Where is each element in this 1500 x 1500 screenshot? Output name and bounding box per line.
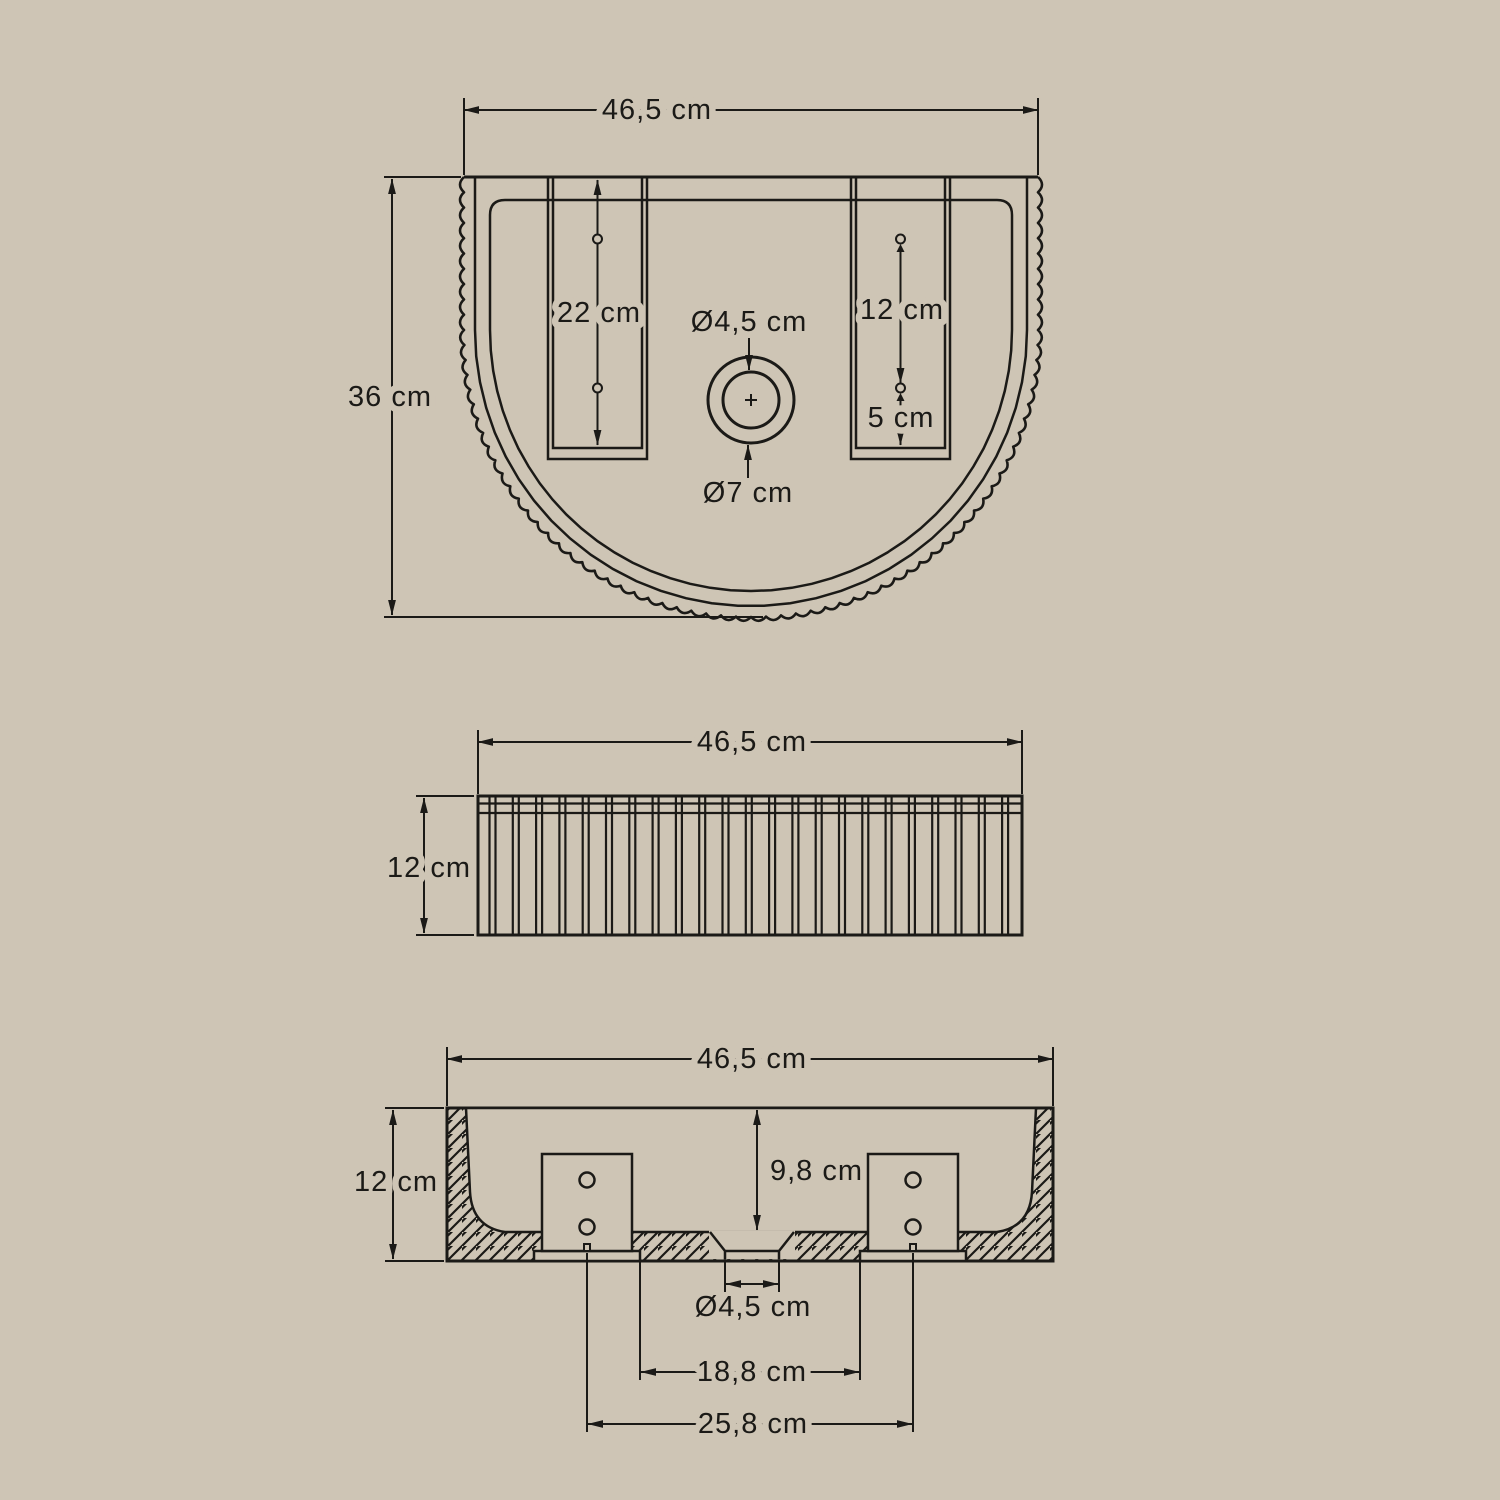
front-width-dimension: 46,5 cm xyxy=(478,726,1022,794)
lower-extension-lines xyxy=(587,1253,913,1432)
mounting-hole-mark xyxy=(593,235,602,244)
mounting-hole-mark xyxy=(593,384,602,393)
technical-drawing-page: 46,5 cm 36 cm 22 cm 12 c xyxy=(0,0,1500,1500)
basin-technical-drawing: 46,5 cm 36 cm 22 cm 12 c xyxy=(0,0,1500,1500)
drain-section xyxy=(709,1231,795,1260)
front-height-label: 12 cm xyxy=(387,852,471,884)
drain-clear xyxy=(709,1231,795,1260)
holes-center-spacing-dimension: 25,8 cm xyxy=(588,1408,912,1440)
front-view: 46,5 cm 12 cm xyxy=(387,726,1022,935)
drain-inner-diameter-label: Ø4,5 cm xyxy=(691,306,808,338)
top-height-label: 36 cm xyxy=(348,381,432,413)
top-width-dimension: 46,5 cm xyxy=(464,94,1038,175)
mini-up-arrow xyxy=(897,393,905,401)
mounting-bracket-left xyxy=(534,1154,640,1261)
slot-left-dimension: 22 cm xyxy=(557,180,641,445)
drain-outer-diameter-label: Ø7 cm xyxy=(703,477,793,509)
mounting-hole-mark xyxy=(896,384,905,393)
bracket-hole xyxy=(580,1220,595,1235)
slot-right-dimension: 12 cm 5 cm xyxy=(860,235,944,446)
holes-inner-spacing-label: 18,8 cm xyxy=(697,1356,807,1388)
slot-depth-label: 22 cm xyxy=(557,297,641,329)
holes-inner-spacing-dimension: 18,8 cm xyxy=(641,1356,859,1388)
mini-up-arrow xyxy=(897,244,905,252)
bracket-hole xyxy=(580,1173,595,1188)
section-view: 46,5 cm 12 cm 9,8 c xyxy=(354,1043,1053,1440)
bracket-hole xyxy=(906,1220,921,1235)
mounting-bracket-right xyxy=(860,1154,966,1261)
bracket-body xyxy=(542,1154,632,1251)
bracket-notch xyxy=(910,1244,916,1251)
drain-center-mark xyxy=(745,394,757,406)
slot-hole-spacing-label: 12 cm xyxy=(860,294,944,326)
section-width-label: 46,5 cm xyxy=(697,1043,807,1075)
top-height-dimension: 36 cm xyxy=(348,177,763,617)
drain-top-view: Ø4,5 cm Ø7 cm xyxy=(691,306,808,509)
top-width-label: 46,5 cm xyxy=(602,94,712,126)
holes-center-spacing-label: 25,8 cm xyxy=(698,1408,808,1440)
basin-depth-label: 9,8 cm xyxy=(770,1155,863,1187)
flute-lines xyxy=(490,797,1009,934)
section-height-label: 12 cm xyxy=(354,1166,438,1198)
section-drain-label: Ø4,5 cm xyxy=(695,1291,812,1323)
bracket-notch xyxy=(584,1244,590,1251)
bracket-body xyxy=(868,1154,958,1251)
front-height-dimension: 12 cm xyxy=(387,796,474,935)
mounting-hole-mark xyxy=(896,235,905,244)
front-width-label: 46,5 cm xyxy=(697,726,807,758)
section-drain-dimension: Ø4,5 cm xyxy=(695,1284,812,1323)
section-height-dimension: 12 cm xyxy=(354,1108,444,1261)
slot-bottom-offset-label: 5 cm xyxy=(868,402,935,434)
extension-lines xyxy=(384,177,763,617)
bracket-hole xyxy=(906,1173,921,1188)
section-width-dimension: 46,5 cm xyxy=(447,1043,1053,1106)
top-view: 46,5 cm 36 cm 22 cm 12 c xyxy=(348,94,1042,621)
